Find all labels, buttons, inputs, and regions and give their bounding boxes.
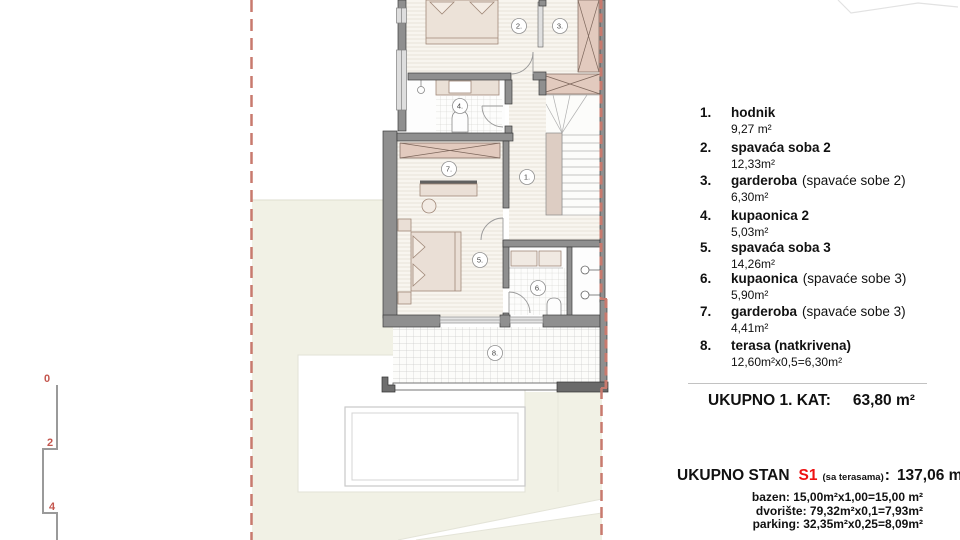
- room-name: spavaća soba 3: [731, 240, 831, 255]
- room-area: 14,26m²: [731, 257, 831, 271]
- windows: [397, 8, 407, 110]
- room-name: hodnik: [731, 105, 775, 120]
- legend-item-4: 4.kupaonica 2 5,03m²: [700, 208, 809, 239]
- room-area: 4,41m²: [731, 321, 906, 335]
- room-name: garderoba: [731, 304, 797, 319]
- bed-room2: [426, 0, 498, 44]
- floor-total-label: UKUPNO 1. KAT:: [708, 392, 831, 409]
- unit-total-colon: :: [885, 467, 890, 485]
- legend-item-8: 8.terasa (natkrivena) 12,60m²x0,5=6,30m²: [700, 338, 851, 369]
- room-note: (spavaće sobe 3): [802, 304, 906, 319]
- item-number: 4.: [700, 208, 731, 223]
- room-area: 5,03m²: [731, 225, 809, 239]
- svg-text:3.: 3.: [557, 22, 563, 31]
- legend-item-6: 6.kupaonica(spavaće sobe 3) 5,90m²: [700, 271, 906, 302]
- room-area: 6,30m²: [731, 190, 906, 204]
- svg-text:6.: 6.: [535, 284, 541, 293]
- floor-total: UKUPNO 1. KAT:63,80 m²: [708, 392, 915, 410]
- legend-item-1: 1.hodnik 9,27 m²: [700, 105, 775, 136]
- pool: [345, 407, 525, 486]
- room-label-2: 2.: [512, 19, 527, 34]
- unit-total-value: 137,06 m²: [897, 467, 960, 485]
- extra-areas: bazen: 15,00m²x1,00=15,00 m² dvorište: 7…: [660, 491, 923, 532]
- item-number: 1.: [700, 105, 731, 120]
- room-name: garderoba: [731, 173, 797, 188]
- room-area: 12,60m²x0,5=6,30m²: [731, 355, 851, 369]
- room-note: (spavaće sobe 2): [802, 173, 906, 188]
- room-area: 9,27 m²: [731, 122, 775, 136]
- room-label-5: 5.: [473, 253, 488, 268]
- room-name: kupaonica: [731, 271, 798, 286]
- svg-text:1.: 1.: [524, 173, 530, 182]
- extra-area-parking: parking: 32,35m²x0,25=8,09m²: [660, 518, 923, 532]
- scale-bar: 0 2 4: [43, 373, 57, 540]
- item-number: 7.: [700, 304, 731, 319]
- legend-item-3: 3.garderoba(spavaće sobe 2) 6,30m²: [700, 173, 906, 204]
- room-area: 5,90m²: [731, 288, 906, 302]
- item-number: 6.: [700, 271, 731, 286]
- svg-text:4: 4: [49, 501, 56, 513]
- item-number: 2.: [700, 140, 731, 155]
- svg-text:2: 2: [47, 437, 53, 449]
- svg-text:8.: 8.: [492, 349, 498, 358]
- item-number: 8.: [700, 338, 731, 353]
- room-label-3: 3.: [553, 19, 568, 34]
- room-label-1: 1.: [520, 170, 535, 185]
- legend-divider: [688, 383, 927, 384]
- floor-plan-sheet: 1. 2. 3. 4. 5. 6.: [0, 0, 960, 540]
- item-number: 5.: [700, 240, 731, 255]
- staircase: [546, 95, 600, 215]
- unit-total-label: UKUPNO STAN: [677, 467, 790, 485]
- glass-doors: [440, 317, 543, 323]
- unit-total: UKUPNO STANS1(sa terasama):137,06 m²: [677, 467, 960, 485]
- room-note: (spavaće sobe 3): [803, 271, 907, 286]
- item-number: 3.: [700, 173, 731, 188]
- svg-text:0: 0: [44, 373, 50, 385]
- legend-item-2: 2.spavaća soba 2 12,33m²: [700, 140, 831, 171]
- unit-id: S1: [799, 467, 818, 485]
- svg-text:2.: 2.: [516, 22, 522, 31]
- legend-item-5: 5.spavaća soba 3 14,26m²: [700, 240, 831, 271]
- room-name: kupaonica 2: [731, 208, 809, 223]
- unit-total-note: (sa terasama): [823, 472, 884, 483]
- terrain-contour: [838, 0, 958, 13]
- legend-item-7: 7.garderoba(spavaće sobe 3) 4,41m²: [700, 304, 906, 335]
- svg-text:7.: 7.: [446, 165, 452, 174]
- room-label-6: 6.: [531, 281, 546, 296]
- extra-area-dvoriste: dvorište: 79,32m²x0,1=7,93m²: [660, 505, 923, 519]
- room-name: spavaća soba 2: [731, 140, 831, 155]
- room-name: terasa (natkrivena): [731, 338, 851, 353]
- room-label-8: 8.: [488, 346, 503, 361]
- svg-text:5.: 5.: [477, 256, 483, 265]
- extra-area-bazen: bazen: 15,00m²x1,00=15,00 m²: [660, 491, 923, 505]
- room-label-7: 7.: [442, 162, 457, 177]
- room-label-4: 4.: [453, 99, 468, 114]
- room-area: 12,33m²: [731, 157, 831, 171]
- svg-text:4.: 4.: [457, 102, 463, 111]
- floor-total-value: 63,80 m²: [853, 392, 915, 409]
